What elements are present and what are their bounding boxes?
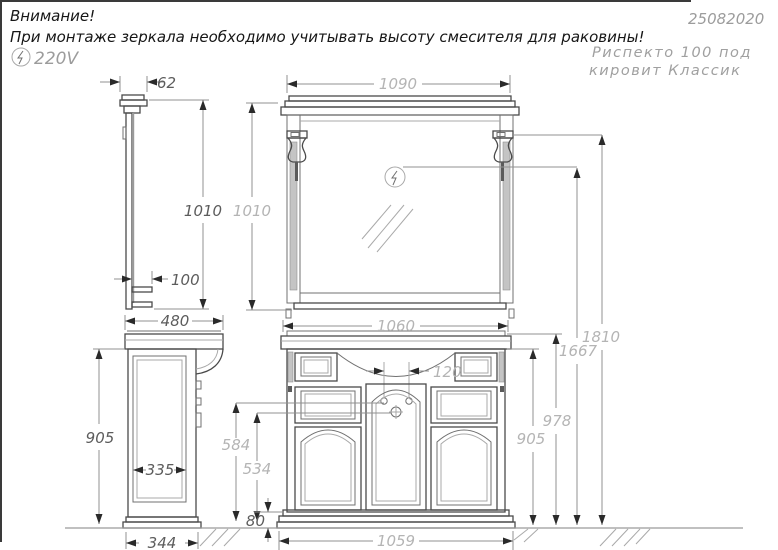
- voltage-badge: 220V: [12, 48, 79, 69]
- drawing-canvas: Внимание! При монтаже зеркала необходимо…: [0, 0, 778, 550]
- mirror-front-view: [281, 96, 519, 318]
- svg-text:905: 905: [86, 429, 115, 447]
- cabinet-front-view: [277, 331, 515, 528]
- svg-text:584: 584: [222, 436, 251, 454]
- mirror-reflection-hatch: [362, 205, 413, 252]
- mirror-shelf-side: [132, 287, 152, 292]
- warning-title: Внимание!: [10, 7, 95, 25]
- dim-plinth-width: 1059: [279, 531, 513, 550]
- lamp-left-stem: [295, 162, 298, 181]
- mirror-side-view: [120, 95, 152, 309]
- svg-text:978: 978: [543, 412, 572, 430]
- svg-text:344: 344: [148, 534, 177, 550]
- dim-worktop-width: 1060: [283, 317, 508, 335]
- lamp-right-stem: [501, 162, 504, 181]
- svg-text:905: 905: [517, 430, 546, 448]
- svg-text:1090: 1090: [379, 75, 417, 93]
- dim-plinth-depth: 344: [126, 532, 198, 550]
- dim-mirror-cornice-depth: 62: [100, 74, 176, 92]
- basin-side-curve: [196, 349, 223, 374]
- cabinet-side-view: [123, 331, 223, 528]
- notes: Внимание! При монтаже зеркала необходимо…: [10, 7, 764, 79]
- dim-cabinet-height-side: 905: [86, 349, 124, 524]
- mirror-shelf-front: [294, 303, 506, 309]
- worktop-front: [281, 336, 511, 349]
- mirror-glass-edge: [132, 113, 134, 303]
- mirror-pane: [300, 115, 500, 293]
- svg-text:62: 62: [157, 74, 176, 92]
- svg-text:480: 480: [161, 312, 190, 330]
- page-border: [0, 0, 691, 542]
- plinth-front: [283, 510, 509, 516]
- svg-text:1810: 1810: [582, 328, 620, 346]
- warning-text: При монтаже зеркала необходимо учитывать…: [10, 28, 645, 46]
- svg-text:80: 80: [246, 512, 265, 530]
- svg-text:100: 100: [171, 271, 200, 289]
- dim-cabinet-height-front: 905: [507, 349, 545, 525]
- voltage-label: 220V: [34, 49, 79, 69]
- dim-plinth-height: 80: [246, 498, 283, 542]
- power-circle-icon: [385, 167, 405, 187]
- mirror-power-point: [385, 167, 405, 187]
- dim-mirror-shelf-depth: 100: [114, 271, 200, 289]
- svg-text:534: 534: [243, 460, 272, 478]
- svg-text:335: 335: [146, 461, 175, 479]
- dim-faucet-holes-spacing: 120: [366, 363, 462, 381]
- dim-lamp-top-height: 1810: [513, 135, 620, 525]
- dim-mirror-height-front: 1010: [233, 103, 292, 310]
- doc-number: 25082020: [688, 10, 764, 28]
- svg-text:1060: 1060: [377, 317, 415, 335]
- svg-text:1010: 1010: [184, 202, 222, 220]
- product-name-line2: кировит Классик: [589, 63, 741, 79]
- svg-text:120: 120: [433, 363, 462, 381]
- lightning-icon: [392, 171, 397, 185]
- svg-text:1059: 1059: [377, 532, 415, 550]
- dimensions: 62 1010 100 1090 1010: [86, 74, 620, 550]
- technical-drawing-page: Внимание! При монтаже зеркала необходимо…: [0, 0, 778, 550]
- worktop-side: [125, 334, 223, 349]
- plinth-side: [126, 517, 198, 522]
- svg-text:1010: 1010: [233, 202, 271, 220]
- product-name-line1: Риспекто 100 под: [592, 45, 752, 61]
- lightning-icon: [18, 51, 23, 64]
- mirror-cornice: [289, 96, 511, 101]
- voltage-circle-icon: [12, 48, 30, 66]
- dim-side-panel-width: 335: [133, 461, 186, 479]
- dim-cabinet-depth: 480: [125, 312, 223, 330]
- dim-mirror-width: 1090: [287, 75, 510, 93]
